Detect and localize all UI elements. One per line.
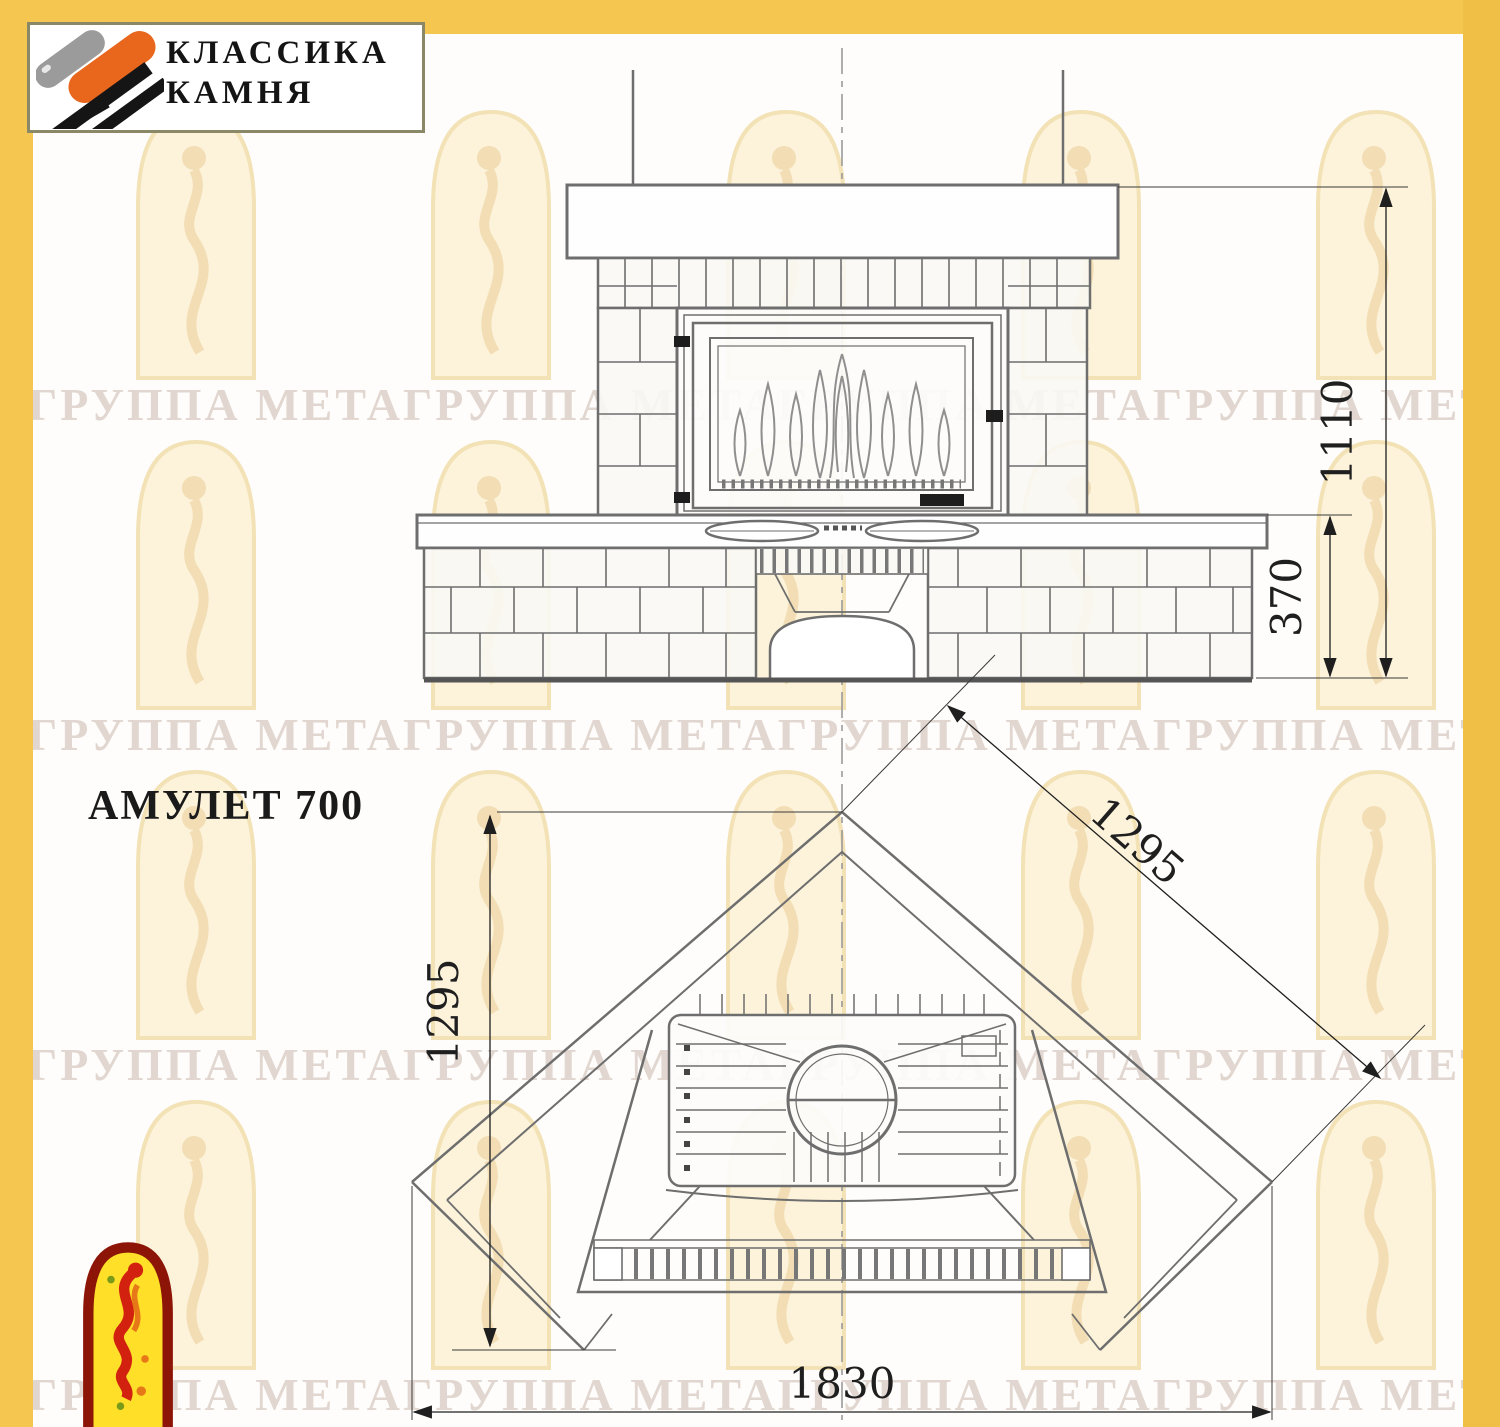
dim-depth-label: 1295 bbox=[419, 959, 468, 1066]
plan-view bbox=[412, 655, 1425, 1420]
right-pillar bbox=[1008, 308, 1087, 515]
page: ГРУППА МЕТАГРУППА МЕТАГРУППА МЕТАГРУППА … bbox=[0, 0, 1500, 1427]
hinge-top bbox=[674, 336, 690, 347]
jester-arch-icon bbox=[80, 1238, 176, 1427]
bench-slab bbox=[417, 515, 1267, 548]
wood-niche-arch bbox=[770, 616, 914, 678]
dim-width-label: 1830 bbox=[789, 1359, 896, 1408]
front-dimensions: 1110 370 bbox=[1262, 189, 1386, 676]
hinge-bottom bbox=[674, 492, 690, 503]
stone-logo-icon bbox=[36, 29, 164, 129]
company-logo-box: КЛАССИКА КАМНЯ bbox=[27, 22, 425, 133]
page-frame-right bbox=[1463, 0, 1500, 1427]
model-title: АМУЛЕТ 700 bbox=[88, 782, 364, 830]
company-name-line1: КЛАССИКА bbox=[166, 35, 390, 72]
chimney-lines bbox=[633, 70, 1063, 185]
left-pillar bbox=[598, 308, 677, 515]
firebox-insert bbox=[677, 308, 1008, 518]
technical-drawing: 1110 370 bbox=[0, 0, 1500, 1427]
dim-height-label: 1110 bbox=[1313, 379, 1362, 486]
page-frame-left bbox=[0, 0, 33, 1427]
mantel-shelf bbox=[567, 185, 1118, 258]
dim-base-height-label: 370 bbox=[1262, 557, 1311, 637]
latch bbox=[986, 410, 1003, 422]
door-handle bbox=[920, 494, 964, 506]
dim-wall-length-label: 1295 bbox=[1081, 788, 1194, 895]
company-name-line2: КАМНЯ bbox=[166, 75, 314, 112]
front-elevation-view bbox=[417, 70, 1408, 680]
